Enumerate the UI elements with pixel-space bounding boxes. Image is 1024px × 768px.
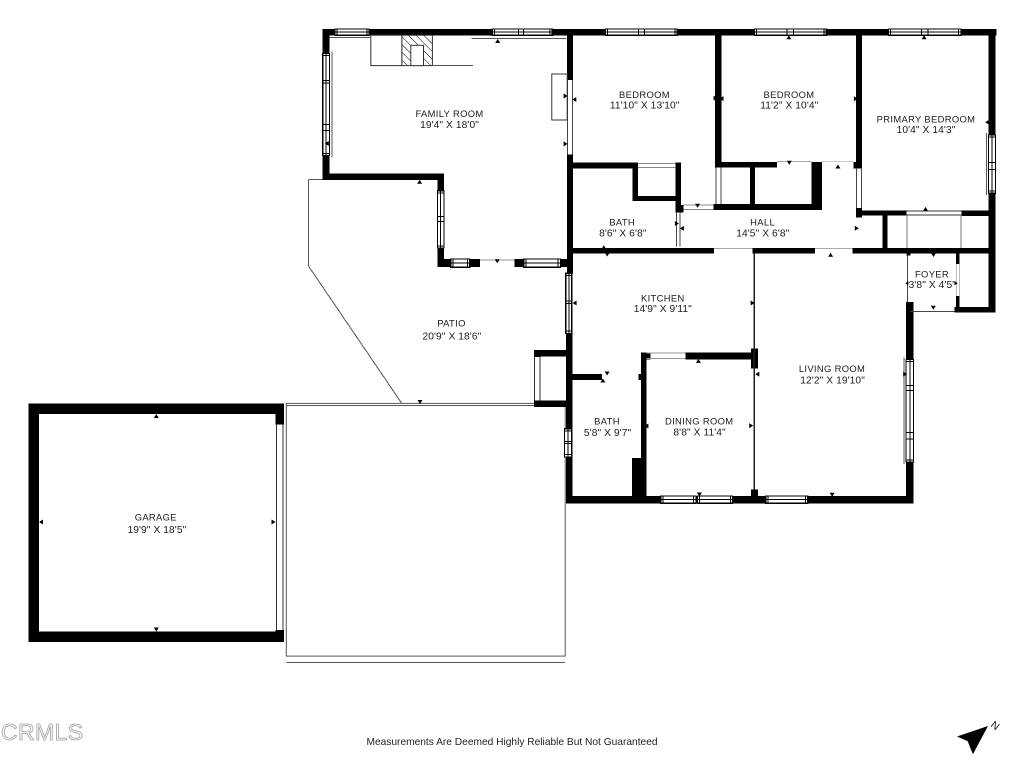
svg-text:Measurements Are Deemed Highly: Measurements Are Deemed Highly Reliable …	[366, 737, 657, 748]
svg-text:HALL: HALL	[750, 217, 775, 228]
svg-text:BEDROOM: BEDROOM	[619, 89, 670, 100]
svg-text:LIVING ROOM: LIVING ROOM	[799, 363, 865, 374]
svg-text:BATH: BATH	[609, 217, 635, 228]
svg-text:12'2" X 19'10": 12'2" X 19'10"	[800, 376, 865, 387]
svg-text:14'5" X 6'8": 14'5" X 6'8"	[736, 228, 789, 239]
svg-text:BEDROOM: BEDROOM	[764, 89, 815, 100]
svg-text:19'4" X 18'0": 19'4" X 18'0"	[420, 120, 479, 131]
svg-text:GARAGE: GARAGE	[135, 511, 177, 522]
svg-text:5'8" X 9'7": 5'8" X 9'7"	[584, 428, 632, 439]
svg-text:11'10" X 13'10": 11'10" X 13'10"	[610, 100, 680, 111]
svg-text:3'8" X 4'5": 3'8" X 4'5"	[909, 280, 957, 291]
svg-text:FAMILY ROOM: FAMILY ROOM	[415, 108, 483, 119]
svg-text:8'6" X 6'8": 8'6" X 6'8"	[599, 228, 647, 239]
svg-text:8'8" X 11'4": 8'8" X 11'4"	[673, 427, 726, 438]
svg-text:CRMLS: CRMLS	[1, 719, 84, 745]
svg-text:BATH: BATH	[594, 415, 620, 426]
svg-text:20'9" X 18'6": 20'9" X 18'6"	[422, 332, 481, 343]
svg-text:14'9" X 9'11": 14'9" X 9'11"	[634, 304, 692, 315]
svg-text:10'4" X 14'3": 10'4" X 14'3"	[897, 125, 956, 136]
svg-text:DINING ROOM: DINING ROOM	[665, 416, 733, 427]
svg-text:FOYER: FOYER	[915, 268, 949, 279]
svg-text:19'9" X 18'5": 19'9" X 18'5"	[127, 525, 186, 536]
svg-text:11'2" X 10'4": 11'2" X 10'4"	[760, 100, 818, 111]
svg-text:PATIO: PATIO	[437, 317, 466, 328]
svg-text:KITCHEN: KITCHEN	[641, 292, 685, 303]
svg-text:PRIMARY BEDROOM: PRIMARY BEDROOM	[877, 114, 976, 125]
